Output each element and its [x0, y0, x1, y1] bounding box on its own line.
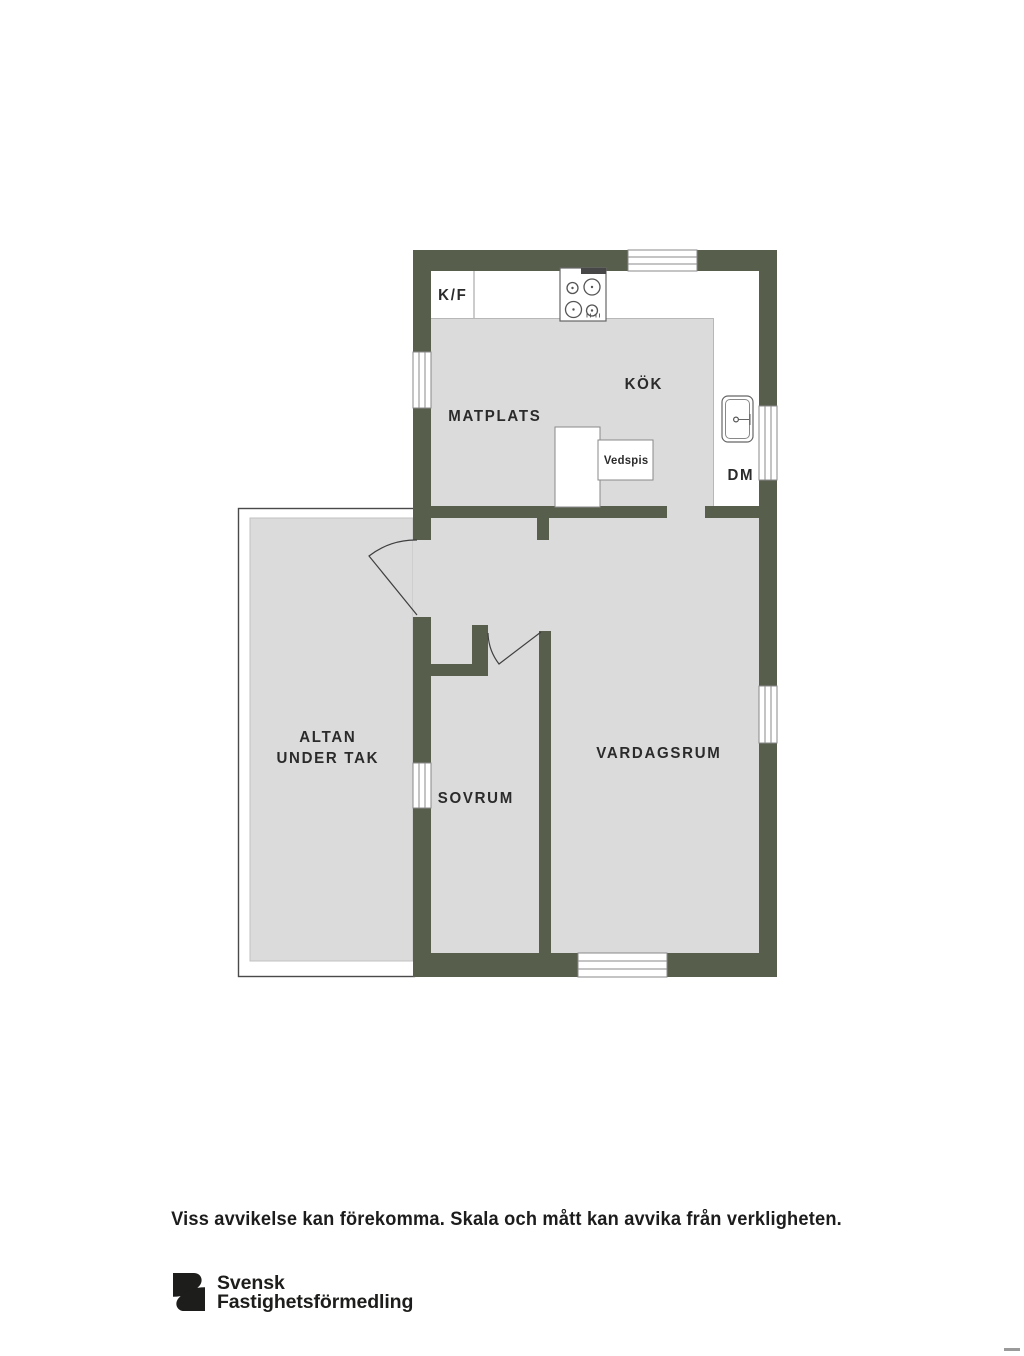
label-vedspis: Vedspis [604, 453, 649, 467]
page-corner-dash [1004, 1348, 1020, 1351]
sovrum-closet-stub [472, 625, 488, 676]
disclaimer-text: Viss avvikelse kan förekomma. Skala och … [20, 1209, 992, 1231]
room-label-altan-line1: ALTAN [298, 729, 357, 747]
agency-logo: Svensk Fastighetsförmedling [172, 1271, 413, 1313]
window-top [628, 250, 697, 271]
burner-dot3 [572, 308, 574, 310]
chimney-block [555, 427, 600, 507]
living-area-floor [431, 517, 759, 953]
hall-wall-stub [537, 506, 549, 540]
stove-panel [581, 268, 606, 274]
room-label-kf: K/F [436, 287, 467, 305]
passage-floor [667, 506, 705, 518]
burner-dot2 [591, 286, 593, 288]
room-label-matplats: MATPLATS [447, 408, 542, 426]
sf-logo-icon [172, 1271, 208, 1313]
entrance-opening [413, 540, 431, 617]
burner-dot4 [591, 309, 593, 311]
window-east-kitchen [759, 406, 777, 480]
floorplan-drawing [0, 0, 1024, 1356]
window-bottom [578, 953, 667, 977]
agency-name-line2: Fastighetsförmedling [217, 1293, 413, 1312]
window-west-kitchen [413, 352, 431, 408]
window-west-sovrum [413, 763, 431, 808]
agency-name: Svensk Fastighetsförmedling [217, 1274, 413, 1312]
label-dm: DM [726, 467, 754, 485]
room-label-altan-line2: UNDER TAK [275, 750, 379, 768]
room-label-sovrum: SOVRUM [436, 790, 514, 808]
sink-icon [722, 396, 753, 442]
kitchen-south-wall-right [705, 506, 759, 518]
sovrum-east-wall [539, 631, 551, 953]
sink-faucet-head [734, 417, 739, 422]
room-label-kok: KÖK [623, 376, 663, 394]
room-label-vardagsrum: VARDAGSRUM [595, 745, 722, 763]
floorplan-page: K/F KÖK MATPLATS Vedspis DM ALTAN UNDER … [0, 0, 1024, 1356]
window-east-vardagsrum [759, 686, 777, 743]
exterior-wall-right [759, 250, 777, 977]
burner-dot1 [571, 287, 573, 289]
stove-icon [560, 268, 606, 321]
